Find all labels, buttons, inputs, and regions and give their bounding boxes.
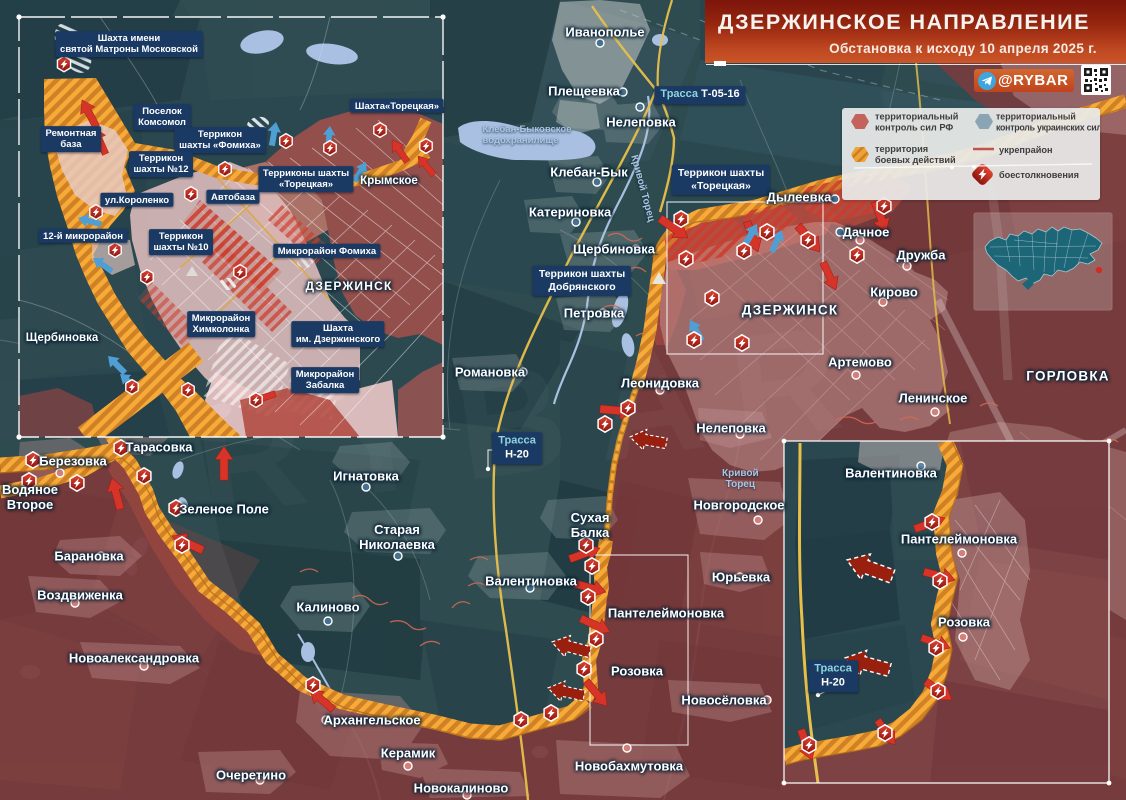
svg-text:боевых действий: боевых действий [875, 155, 956, 165]
svg-text:территориальный: территориальный [996, 112, 1076, 122]
svg-text:укрепрайон: укрепрайон [999, 145, 1053, 155]
svg-text:территориальный: территориальный [875, 112, 959, 122]
svg-text:боестолкновения: боестолкновения [999, 170, 1079, 180]
svg-text:территория: территория [875, 144, 928, 154]
svg-text:контроль сил РФ: контроль сил РФ [875, 123, 953, 133]
svg-text:контроль украинских сил: контроль украинских сил [996, 123, 1100, 133]
